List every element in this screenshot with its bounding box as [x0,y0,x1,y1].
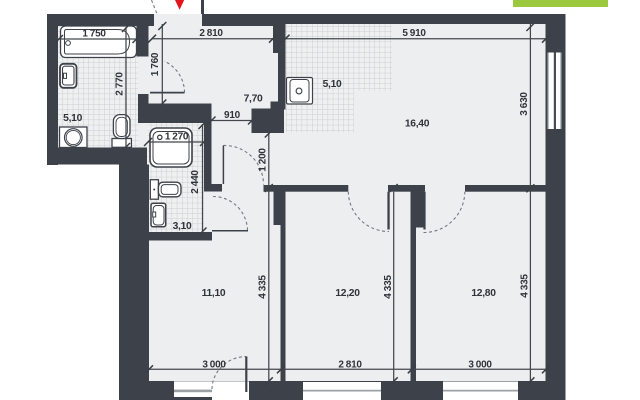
svg-text:1 760: 1 760 [150,52,161,76]
svg-text:12,80: 12,80 [471,288,496,299]
svg-text:5,10: 5,10 [323,79,342,90]
svg-text:1 750: 1 750 [82,29,106,40]
svg-text:910: 910 [224,110,241,121]
svg-text:4 335: 4 335 [520,274,531,298]
svg-text:1 200: 1 200 [258,148,269,172]
svg-text:3 000: 3 000 [202,359,226,370]
svg-text:1 270: 1 270 [165,132,189,143]
svg-text:3 000: 3 000 [468,359,492,370]
svg-text:4 335: 4 335 [383,275,394,299]
svg-text:12,20: 12,20 [335,288,360,299]
svg-text:4 335: 4 335 [258,275,269,299]
svg-text:3,10: 3,10 [173,221,192,232]
svg-text:2 810: 2 810 [338,359,362,370]
svg-text:16,40: 16,40 [405,119,430,130]
svg-text:2 810: 2 810 [199,28,223,39]
svg-text:5,10: 5,10 [63,113,82,124]
svg-text:3 630: 3 630 [519,92,530,116]
svg-text:2 440: 2 440 [190,170,201,194]
svg-text:5 910: 5 910 [402,28,426,39]
svg-text:11,10: 11,10 [202,288,226,299]
svg-text:7,70: 7,70 [244,94,263,105]
svg-text:2 770: 2 770 [115,72,126,96]
